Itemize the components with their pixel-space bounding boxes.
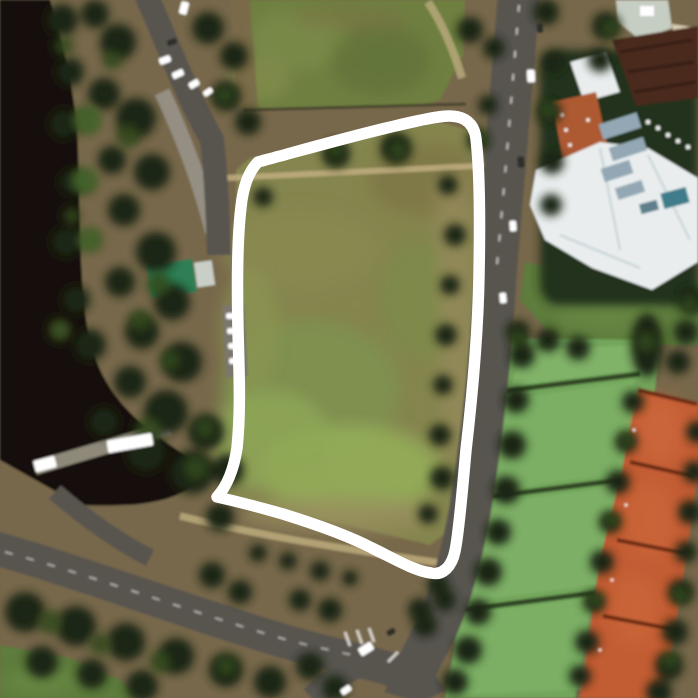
tree [296,652,324,680]
tree [590,550,614,574]
white-dot [666,133,671,138]
tree [440,275,460,295]
tree-highlight [195,418,215,438]
tree [435,324,457,346]
tree-highlight [671,586,689,604]
tree [254,666,286,698]
tree [503,387,529,413]
tree [540,194,562,216]
tree-highlight [38,610,62,634]
tree [51,227,81,257]
tree [279,552,297,570]
tree [485,519,511,545]
tree [474,558,502,586]
net-post [624,503,628,507]
white-dot [686,145,691,150]
tree-highlight [149,651,171,673]
tree [89,407,119,437]
tree [107,623,145,661]
tree-highlight [510,330,526,346]
tree-highlight [63,207,81,225]
tree [134,154,170,190]
tree [342,570,358,586]
tree [606,470,630,494]
corner-building-white [640,6,654,16]
tree [77,659,107,689]
tree-highlight [216,86,234,104]
tree [220,42,248,70]
tree [588,48,612,72]
tree [289,589,311,611]
photo-layers [0,0,698,698]
net-post [598,648,602,652]
tree-highlight [89,633,111,655]
tree-highlight [216,656,236,676]
vehicle-dark [537,23,543,33]
net-post [632,428,636,432]
tree [108,194,140,226]
tree [413,613,437,637]
tree [206,503,234,531]
tree [429,424,451,446]
tree-highlight [160,350,180,370]
tree-highlight [389,141,407,159]
tree [483,37,505,59]
tree [434,589,456,611]
tree [105,267,135,297]
tree [444,224,466,246]
tree [418,504,438,524]
tree-highlight [129,309,151,331]
upper-field [230,0,466,110]
tree [228,580,252,604]
tree [457,17,483,43]
tree [540,150,564,174]
tree [74,329,106,361]
tree [433,375,453,395]
tree [249,544,267,562]
tree [465,599,491,625]
tree-highlight [102,50,122,70]
tree [478,95,498,115]
tree-highlight [604,512,620,528]
tree [88,78,120,110]
tree [569,665,591,687]
tree [46,4,78,36]
tree-highlight [619,432,635,448]
tree [509,342,535,368]
tree [253,187,273,207]
tree [98,146,126,174]
tree-highlight [146,272,170,296]
tree [675,541,697,563]
tree [666,350,690,374]
tree [56,58,84,86]
tree [541,50,565,74]
tree [438,175,458,195]
white-dot [676,139,681,144]
tree [81,0,109,28]
tree [566,336,590,360]
tree-highlight [116,124,140,148]
vehicle-white [527,69,536,82]
vehicle-white [509,220,517,231]
satellite-canvas[interactable] [0,0,698,698]
tree [454,636,482,664]
tree [430,466,454,490]
tree [674,320,698,344]
tree [318,598,342,622]
white-dot [646,120,651,125]
tree [136,232,176,272]
tree-highlight [184,456,208,480]
tree [662,619,688,645]
tree-highlight [539,101,557,119]
tree [622,391,644,413]
tree-highlight [54,36,74,56]
tree [575,630,599,654]
tree [192,12,224,44]
white-dot [656,126,661,131]
tree [62,286,90,314]
tree-highlight [636,332,656,352]
tree [310,561,330,581]
tree [536,328,560,352]
tree [533,0,559,25]
tree [235,109,261,135]
tree [199,562,225,588]
tree [114,366,146,398]
shed-annex [194,260,215,287]
tree-highlight [661,651,679,669]
tree-highlight [588,592,604,608]
net-post [610,578,614,582]
vehicle-white [499,292,507,304]
satellite-map-view[interactable] [0,0,698,698]
tree-highlight [601,19,619,37]
tree [492,476,520,504]
tree [26,646,58,678]
tree [442,669,468,695]
vehicle-dark [517,156,525,167]
tree [498,431,526,459]
